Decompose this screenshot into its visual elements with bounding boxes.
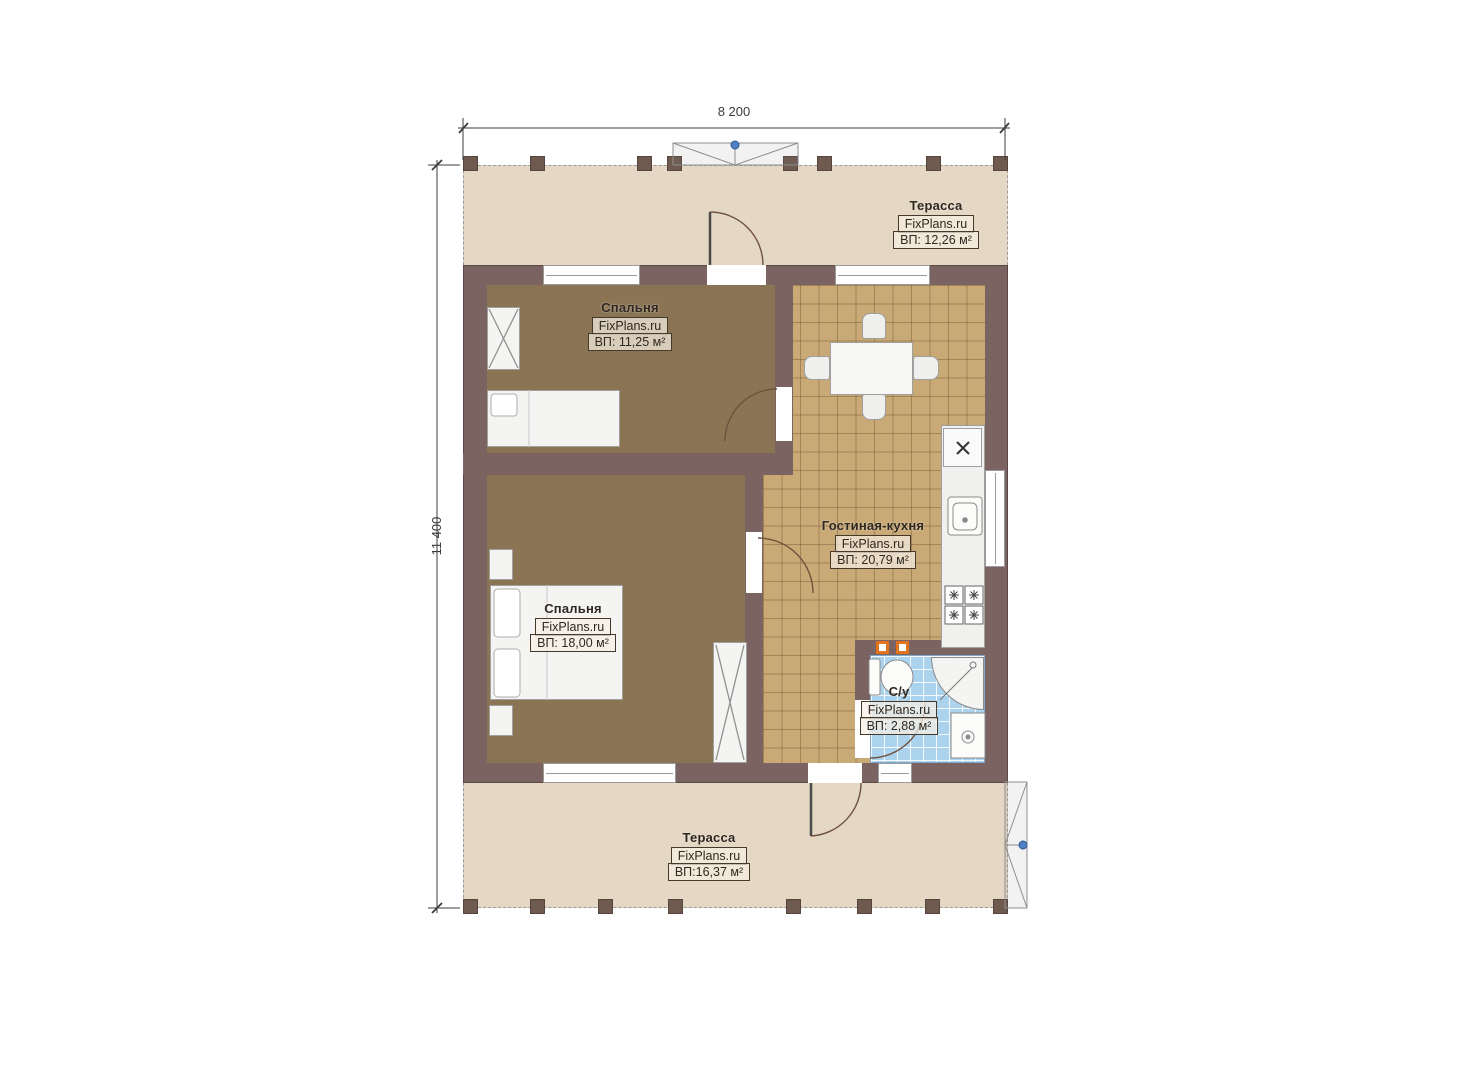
window-bedroom-top (543, 265, 640, 285)
vent-block (876, 641, 889, 654)
room-area: ВП: 12,26 м² (893, 231, 979, 249)
post (530, 899, 545, 914)
room-area: ВП: 18,00 м² (530, 634, 616, 652)
dimension-line-top (458, 118, 1010, 160)
floor-plan-canvas: Терасса FixPlans.ru ВП: 12,26 м² Спальня… (0, 0, 1474, 1080)
fridge (943, 428, 982, 467)
room-label-terrace-top: Терасса FixPlans.ru ВП: 12,26 м² (880, 198, 992, 249)
room-watermark: FixPlans.ru (861, 701, 938, 719)
room-name: Терасса (880, 198, 992, 213)
blue-node-icon (1019, 841, 1027, 849)
post (783, 156, 798, 171)
room-name: Гостиная-кухня (808, 518, 938, 533)
post (598, 899, 613, 914)
room-label-bathroom: С/у FixPlans.ru ВП: 2,88 м² (856, 684, 942, 735)
vent-block (896, 641, 909, 654)
post (817, 156, 832, 171)
bedroom-bottom-door-leaf (746, 532, 762, 593)
room-label-living-kitchen: Гостиная-кухня FixPlans.ru ВП: 20,79 м² (808, 518, 938, 569)
single-bed (487, 390, 620, 447)
chair (862, 313, 886, 339)
bedroom-top-door-leaf (776, 387, 792, 441)
wall-bedroom-bottom-living (745, 475, 763, 763)
window-living-right (985, 470, 1005, 567)
room-label-terrace-bottom: Терасса FixPlans.ru ВП:16,37 м² (653, 830, 765, 881)
chair (862, 394, 886, 420)
front-door-opening (707, 265, 766, 285)
room-watermark: FixPlans.ru (592, 317, 669, 335)
room-area: ВП:16,37 м² (668, 863, 750, 881)
window-bedroom-bottom (543, 763, 676, 783)
room-area: ВП: 11,25 м² (588, 333, 673, 351)
canopy-right (1005, 782, 1027, 908)
room-watermark: FixPlans.ru (835, 535, 912, 553)
back-door-opening (808, 763, 862, 783)
canopy-top (673, 143, 798, 165)
post (463, 156, 478, 171)
dining-table (830, 342, 913, 395)
post (925, 899, 940, 914)
post (667, 156, 682, 171)
room-area: ВП: 20,79 м² (830, 551, 916, 569)
post (993, 156, 1008, 171)
window-bathroom (878, 763, 912, 783)
post (530, 156, 545, 171)
chair (804, 356, 830, 380)
post (926, 156, 941, 171)
room-name: Терасса (653, 830, 765, 845)
post (463, 899, 478, 914)
post (668, 899, 683, 914)
room-watermark: FixPlans.ru (671, 847, 748, 865)
room-name: Спальня (574, 300, 686, 315)
post (993, 899, 1008, 914)
blue-node-icon (731, 141, 739, 149)
wall-between-bedrooms (463, 453, 793, 475)
dimension-width-label: 8 200 (704, 104, 764, 119)
room-label-bedroom-top: Спальня FixPlans.ru ВП: 11,25 м² (574, 300, 686, 351)
room-name: Спальня (517, 601, 629, 616)
post (786, 899, 801, 914)
wardrobe-bedroom-bottom (713, 642, 747, 763)
post (637, 156, 652, 171)
room-label-bedroom-bottom: Спальня FixPlans.ru ВП: 18,00 м² (517, 601, 629, 652)
room-area: ВП: 2,88 м² (860, 717, 939, 735)
chair (913, 356, 939, 380)
nightstand (489, 705, 513, 736)
nightstand (489, 549, 513, 580)
room-name: С/у (856, 684, 942, 699)
wardrobe-bedroom-top (487, 307, 520, 370)
room-watermark: FixPlans.ru (535, 618, 612, 636)
window-living-top (835, 265, 930, 285)
post (857, 899, 872, 914)
room-watermark: FixPlans.ru (898, 215, 975, 233)
dimension-height-label: 11 400 (429, 506, 445, 566)
